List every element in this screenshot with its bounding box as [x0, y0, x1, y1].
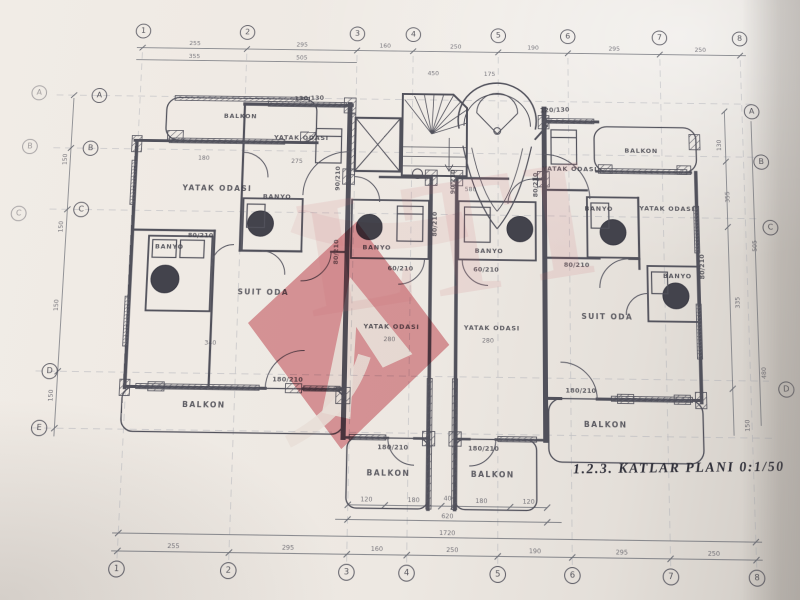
room-label-banyo-left-1: BANYO	[263, 193, 292, 201]
room-label-yatak-left-main: YATAK ODASI	[182, 183, 252, 193]
grid-axis-col-5-top: 5	[491, 28, 506, 43]
room-label-balkon-bottom-left: BALKON	[182, 400, 226, 410]
grid-axis-row-c-right: C	[762, 220, 778, 236]
dim-int-340: 340	[204, 340, 216, 347]
grid-axis-col-6-top: 6	[560, 29, 576, 44]
dim-top-4: 250	[450, 44, 461, 51]
room-label-yatak-top-left2: YATAK ODASI	[274, 134, 329, 142]
dim-right-6: 480	[761, 367, 768, 379]
dim-upper-450: 450	[427, 70, 439, 77]
grid-axis-row-a-right: A	[744, 104, 760, 119]
dim-bottom-3: 160	[371, 546, 383, 554]
dim-left-1: 150	[62, 154, 70, 165]
room-label-balkon-center-right: BALKON	[471, 470, 515, 480]
dim-left-4: 150	[47, 389, 55, 401]
grid-axis-col-5-bottom: 5	[489, 566, 506, 583]
dim-top-6: 295	[608, 46, 620, 53]
room-label-suit-left: SUIT ODA	[237, 287, 289, 297]
plan-title: 1.2.3. KATLAR PLANI 0:1/50	[573, 458, 785, 477]
dim-int-280-right: 280	[482, 337, 494, 344]
grid-axis-col-8-bottom: 8	[749, 570, 766, 587]
dim-right-5: 505	[752, 240, 759, 252]
balcony-bottom-left	[120, 386, 344, 434]
balcony-bottom-right	[549, 398, 705, 464]
dim-total-width: 1720	[439, 530, 455, 538]
door-label-180-center-right: 180/210	[468, 444, 499, 453]
dim-bottom-7: 250	[708, 550, 720, 558]
round-tub-left-1	[247, 211, 274, 237]
room-label-banyo-left-2: BANYO	[155, 243, 184, 251]
dim-right-2: 355	[724, 191, 731, 202]
window-label-130-130: 130/130	[295, 94, 325, 103]
room-label-balkon-top-right: BALKON	[624, 147, 658, 155]
dim-top-3: 160	[379, 43, 391, 50]
dim-int-180: 180	[198, 155, 210, 162]
door-label-80-left: 80/210	[188, 231, 214, 239]
dim-balcony-1: 120	[360, 496, 372, 503]
dim-balcony-5: 120	[523, 498, 535, 505]
dim-top-1: 255	[189, 40, 201, 47]
room-label-banyo-right-2: BANYO	[663, 272, 692, 280]
dim-bottom-1: 255	[167, 543, 180, 551]
dim-upper-505: 505	[296, 55, 308, 62]
dim-balcony-3: 40	[443, 495, 451, 502]
grid-axis-col-6-bottom: 6	[564, 567, 581, 584]
room-label-yatak-right-main: YATAK ODASI	[639, 205, 694, 213]
grid-axis-col-4-bottom: 4	[398, 565, 415, 582]
dim-top-5: 190	[527, 45, 538, 52]
grid-axis-col-4-top: 4	[406, 27, 422, 42]
dim-left-2: 150	[58, 221, 66, 233]
dim-balcony-4: 180	[475, 498, 487, 505]
window-label-120-130: 120/130	[540, 106, 570, 115]
dim-right-3: 335	[734, 297, 741, 309]
dim-top-2: 295	[296, 42, 308, 49]
dim-bottom-5: 190	[529, 548, 541, 556]
dim-right-1: 130	[716, 140, 723, 151]
dim-right-4: 150	[744, 420, 752, 432]
dim-left-3: 150	[53, 299, 61, 311]
room-label-balkon-bottom-right: BALKON	[584, 420, 628, 430]
grid-axis-col-7-bottom: 7	[662, 568, 679, 585]
dim-center-total: 620	[441, 513, 453, 521]
door-label-80v-right-wall: 80/210	[698, 254, 707, 279]
door-label-180-center-left: 180/210	[377, 443, 408, 452]
dim-bottom-4: 250	[446, 547, 458, 555]
dim-bottom-6: 295	[616, 549, 628, 557]
door-label-180-left: 180/210	[272, 375, 303, 384]
dim-bottom-2: 295	[282, 544, 294, 552]
photo-of-floor-plan: BALKON YATAK ODASI YATAK ODASI BANYO SUI…	[0, 0, 800, 600]
dim-upper-175: 175	[484, 71, 495, 78]
grid-axis-col-7-top: 7	[652, 30, 668, 45]
grid-axis-row-b-right: B	[753, 154, 769, 169]
round-tub-left-2	[150, 265, 179, 293]
room-label-balkon-center-left: BALKON	[366, 468, 410, 478]
grid-axis-col-8-top: 8	[732, 32, 748, 47]
dim-upper-355: 355	[189, 53, 201, 60]
door-label-180-right: 180/210	[565, 386, 596, 395]
dim-top-7: 250	[694, 47, 706, 54]
room-label-balkon-top-left: BALKON	[224, 112, 258, 120]
dim-balcony-2: 180	[407, 497, 419, 504]
grid-axis-row-d-right: D	[778, 381, 795, 397]
round-tub-right-2	[663, 283, 690, 309]
